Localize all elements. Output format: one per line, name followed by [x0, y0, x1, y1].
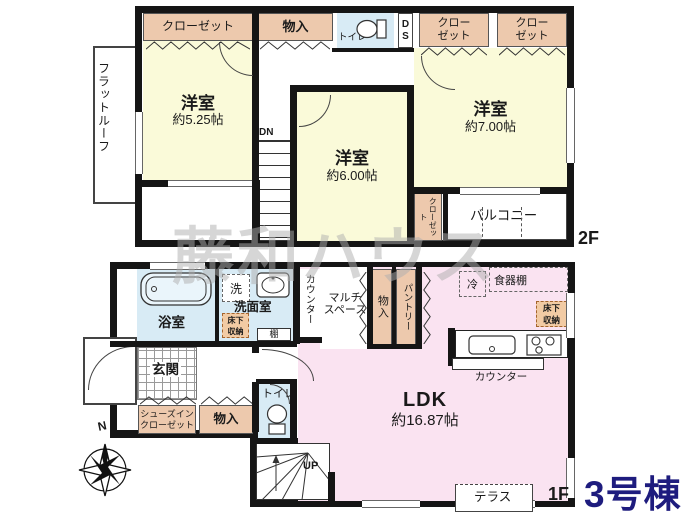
duct-space-label: D S [402, 19, 409, 42]
wall [252, 382, 259, 432]
room-size: 約5.25帖 [172, 113, 223, 128]
room-size: 約6.00帖 [326, 169, 377, 184]
wall [252, 341, 259, 353]
underfloor-storage-label: 床下 収納 [228, 315, 244, 337]
cupboard-label: 食器棚 [490, 272, 527, 288]
refrigerator-label: 冷 [467, 276, 478, 292]
ldk-label-group: LDK 約16.87帖 [350, 386, 500, 432]
shoes-in-closet-label: シューズイン クローゼット [140, 409, 194, 430]
stairs-2f [258, 140, 292, 241]
storage-label: 物入 [376, 295, 389, 319]
wall [110, 341, 297, 347]
washer-box: 洗 [222, 274, 250, 302]
underfloor-storage-label: 床下 収納 [543, 302, 560, 326]
balcony-label: バルコニー [470, 208, 537, 223]
hanger-pipe-mark [421, 47, 487, 56]
ldk-size: 約16.87帖 [391, 412, 459, 429]
stairs-1f [256, 443, 330, 500]
pantry-label: パントリー [401, 283, 412, 331]
stairs-down-label: DN [259, 127, 273, 138]
cupboard-box: 食器棚 [489, 267, 568, 292]
counter-side-label: カウンター [303, 274, 314, 336]
window [150, 262, 205, 270]
duct-space-2f: D S [398, 13, 413, 48]
wall [290, 85, 414, 92]
entrance-label: 玄関 [150, 362, 181, 377]
refrigerator-box: 冷 [459, 271, 486, 297]
floor2-label: 2F [578, 228, 599, 248]
wall [290, 379, 297, 441]
storage-label: 物入 [282, 20, 308, 35]
closet-label: クロー ゼット [438, 17, 471, 42]
window [168, 180, 252, 187]
hanger-pipe-mark [423, 272, 431, 344]
building-label: 3号棟 [584, 474, 682, 515]
storage-label: 物入 [213, 412, 238, 426]
floor-plan-canvas: フラットルーフ クローゼット 物入 トイレ D S クロー ゼット クロー ゼッ… [0, 0, 700, 525]
room-name: 洋室 [335, 149, 369, 169]
stove-icon [526, 334, 562, 356]
balcony-mark [521, 207, 522, 237]
closet-label: クローゼット [419, 194, 437, 240]
closet-2f-top-left: クローゼット [143, 13, 253, 41]
wall [416, 266, 422, 348]
wall [367, 266, 373, 348]
wall [252, 6, 259, 187]
stairs-up-label: UP [303, 460, 318, 472]
pantry: パントリー [396, 269, 416, 345]
bathroom-label: 浴室 [158, 315, 185, 330]
compass-north-label: N [97, 419, 108, 434]
room-name: 洋室 [181, 94, 215, 114]
hanger-pipe-mark [359, 272, 367, 344]
toilet-icon [265, 403, 289, 437]
storage-2f-top: 物入 [258, 13, 333, 41]
bathtub-icon [140, 272, 212, 306]
kitchen-counter-label: カウンター [458, 372, 544, 384]
compass-icon [72, 424, 138, 502]
floor1-label: 1F [548, 484, 569, 504]
wall [293, 262, 300, 344]
washroom-label: 洗面室 [234, 300, 272, 314]
wall [332, 48, 414, 52]
underfloor-storage-left: 床下 収納 [222, 313, 249, 338]
window [566, 293, 575, 338]
shelf-box: 棚 [257, 328, 291, 341]
closet-label: クロー ゼット [516, 17, 549, 42]
closet-2f-top-right-1: クロー ゼット [419, 13, 489, 47]
wall [252, 438, 298, 444]
ldk-name: LDK [403, 389, 447, 412]
washer-label: 洗 [230, 280, 242, 297]
closet-2f-top-right-2: クロー ゼット [497, 13, 567, 47]
room-size: 約7.00帖 [465, 120, 516, 135]
balcony-mark [482, 207, 483, 237]
closet-label: クローゼット [162, 20, 234, 34]
closet-2f-side: クローゼット [414, 193, 442, 241]
wall [443, 193, 448, 241]
kitchen-counter-low [452, 358, 544, 370]
wall [392, 266, 396, 348]
wall [252, 180, 260, 247]
wall [215, 267, 219, 341]
underfloor-storage-right: 床下 収納 [536, 301, 567, 327]
wall [367, 344, 422, 349]
toilet-icon [355, 16, 391, 42]
kitchen-sink-icon [468, 335, 516, 355]
sink-icon [256, 272, 290, 298]
storage-1f-bottom: 物入 [199, 405, 253, 434]
window [135, 112, 143, 174]
wall [293, 337, 322, 343]
wall [328, 472, 335, 502]
terrace-label: テラス [474, 490, 511, 504]
wall [290, 85, 297, 247]
hanger-pipe-mark [201, 396, 253, 405]
window [566, 88, 575, 163]
window [460, 187, 540, 195]
hanger-pipe-mark [499, 47, 565, 56]
room-name: 洋室 [474, 100, 508, 120]
shoes-in-closet: シューズイン クローゼット [138, 405, 196, 434]
storage-1f-mid: 物入 [372, 269, 392, 345]
hanger-pipe-mark [140, 396, 196, 405]
wall [407, 85, 414, 247]
shelf-label: 棚 [269, 329, 278, 339]
hanger-pipe-mark [260, 41, 330, 50]
window [362, 500, 420, 508]
flat-roof-label: フラットルーフ [96, 62, 109, 192]
